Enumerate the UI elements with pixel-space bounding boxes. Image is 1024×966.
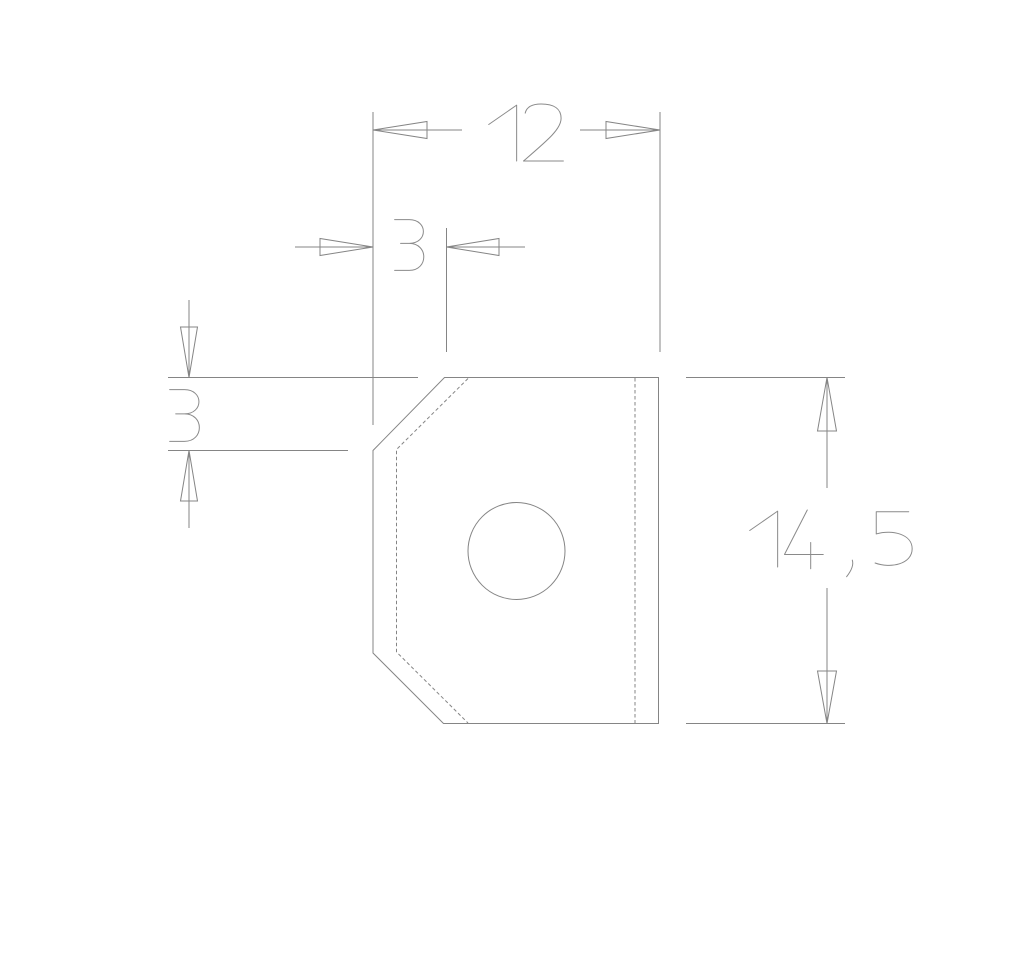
glyph-1 — [750, 511, 778, 567]
glyph-2 — [523, 104, 563, 161]
glyph-, — [847, 560, 853, 577]
dim-chamfer-height — [168, 300, 418, 528]
cad-drawing-page — [0, 0, 1024, 966]
dim-height — [686, 378, 912, 724]
dim-chamfer-width-value — [395, 220, 424, 271]
glyph-3 — [395, 220, 424, 271]
bend-line-left — [397, 379, 469, 724]
dim-width — [373, 104, 660, 425]
glyph-3 — [170, 390, 200, 442]
dim-chamfer-width — [295, 220, 525, 352]
part-view — [373, 378, 659, 724]
glyph-4 — [784, 510, 823, 569]
cad-drawing-canvas — [0, 0, 1024, 966]
hole-circle — [468, 503, 565, 600]
glyph-5 — [875, 512, 912, 566]
glyph-1 — [489, 105, 517, 161]
dim-width-value — [489, 104, 564, 161]
dim-chamfer-height-value — [170, 390, 200, 442]
dim-height-value — [750, 510, 912, 577]
